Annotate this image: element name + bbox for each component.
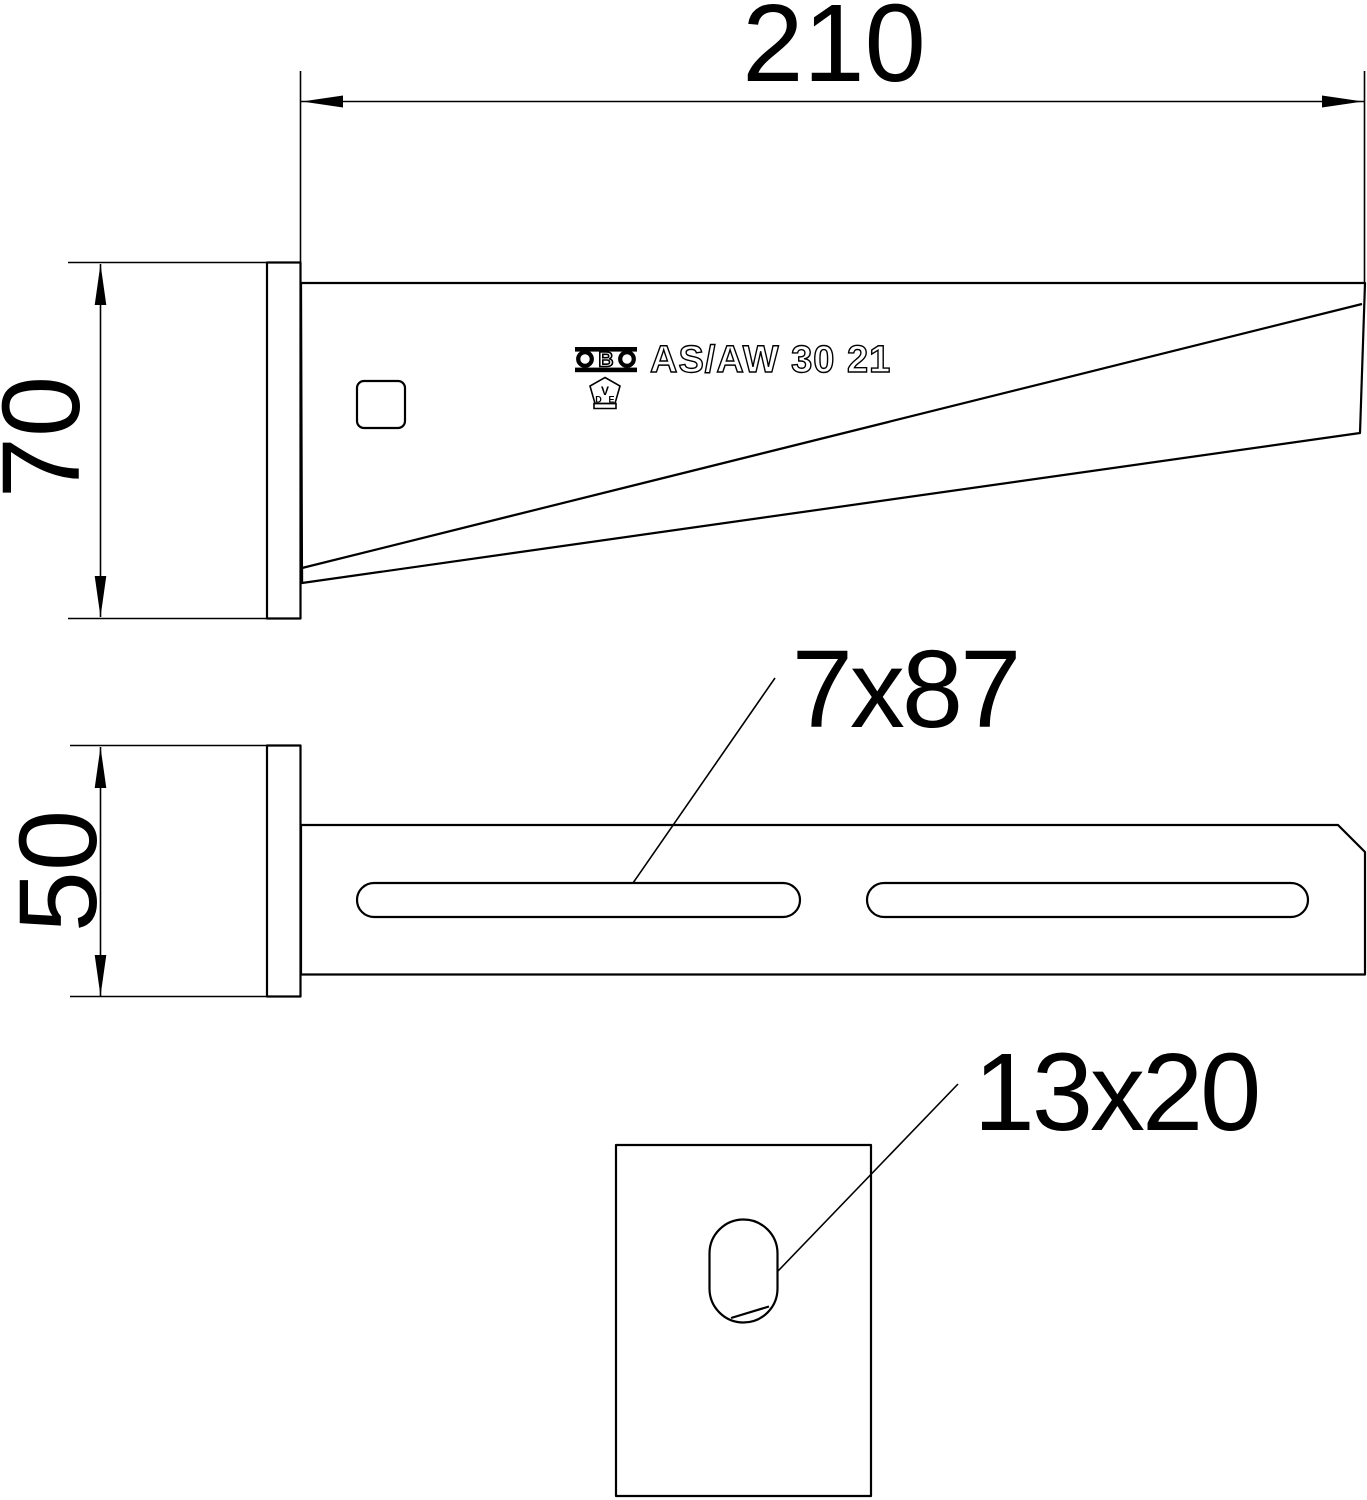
dim-plate-width-50: 50 [0, 746, 267, 997]
side-view: 210 70 B [0, 0, 1365, 619]
product-type-label: AS/AW 30 21 [650, 339, 891, 381]
leader-line [633, 678, 775, 883]
vde-letter-d: D [595, 395, 602, 405]
obo-logo-b-letter: B [598, 349, 613, 372]
dim-plate-height-label: 70 [0, 376, 103, 498]
arrowhead-down-icon [95, 576, 107, 617]
wall-plate-front-outline [616, 1145, 871, 1496]
front-view: 13x20 [616, 1031, 1258, 1496]
drawing-canvas: 210 70 B [0, 0, 1367, 1500]
anchor-hole-callout: 13x20 [778, 1031, 1258, 1271]
obo-logo-o-right [620, 352, 634, 366]
anchor-hole-size-label: 13x20 [974, 1031, 1259, 1154]
slot-hole-left [357, 883, 800, 917]
vde-letter-e: E [608, 395, 614, 405]
product-stamp: B V D E AS/AW 30 21 [575, 339, 891, 409]
dim-plate-width-label: 50 [0, 810, 120, 932]
vde-mark: V D E [590, 378, 620, 409]
arrowhead-down-icon [95, 955, 107, 996]
technical-drawing: 210 70 B [0, 0, 1367, 1500]
dim-plate-height-70: 70 [0, 263, 267, 619]
arrowhead-left-icon [302, 96, 343, 108]
obo-logo-o-left [578, 352, 592, 366]
top-view: 50 7x87 [0, 628, 1365, 997]
slot-callout: 7x87 [633, 628, 1018, 883]
slot-hole-right [867, 883, 1308, 917]
bracket-arm-top-outline [301, 825, 1365, 975]
arrowhead-up-icon [95, 264, 107, 305]
obo-logo: B [575, 347, 637, 372]
arrowhead-up-icon [95, 747, 107, 788]
arrowhead-right-icon [1322, 96, 1363, 108]
bracket-arm-side-outline [301, 283, 1365, 583]
wall-plate-top-outline [267, 746, 301, 997]
wall-plate-side-outline [267, 263, 301, 619]
dim-length-210: 210 [301, 0, 1365, 283]
leader-line [778, 1084, 958, 1271]
dim-length-label: 210 [742, 0, 926, 105]
square-hole [357, 381, 405, 428]
slot-size-label: 7x87 [792, 628, 1019, 751]
